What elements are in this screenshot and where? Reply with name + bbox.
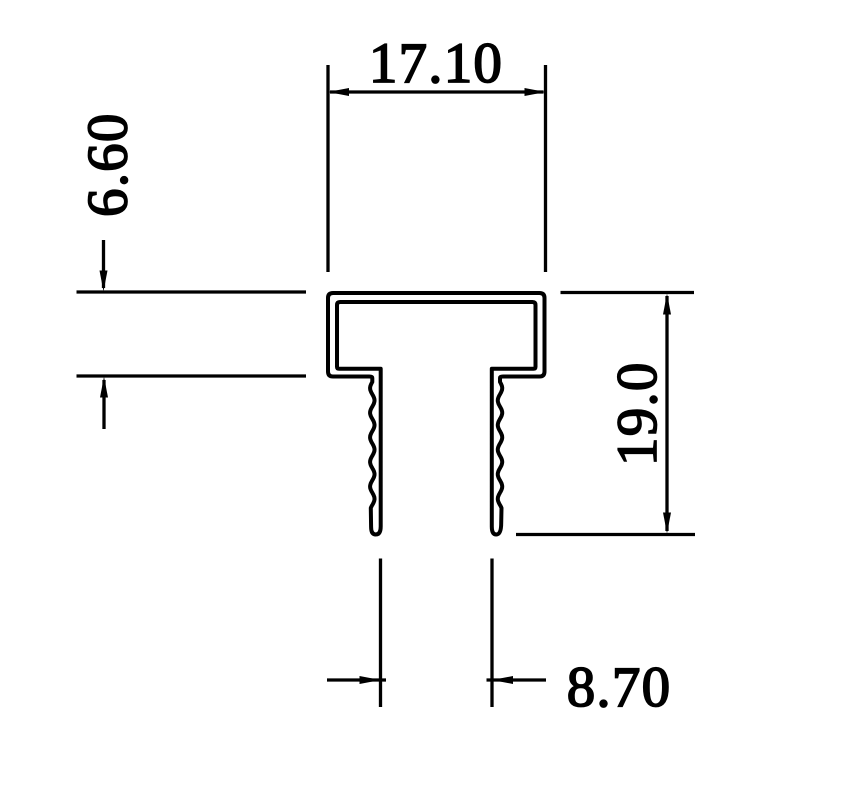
svg-text:17.10: 17.10 xyxy=(369,32,503,95)
svg-text:19.0: 19.0 xyxy=(606,361,669,466)
svg-text:8.70: 8.70 xyxy=(567,656,672,719)
svg-text:6.60: 6.60 xyxy=(77,112,140,217)
